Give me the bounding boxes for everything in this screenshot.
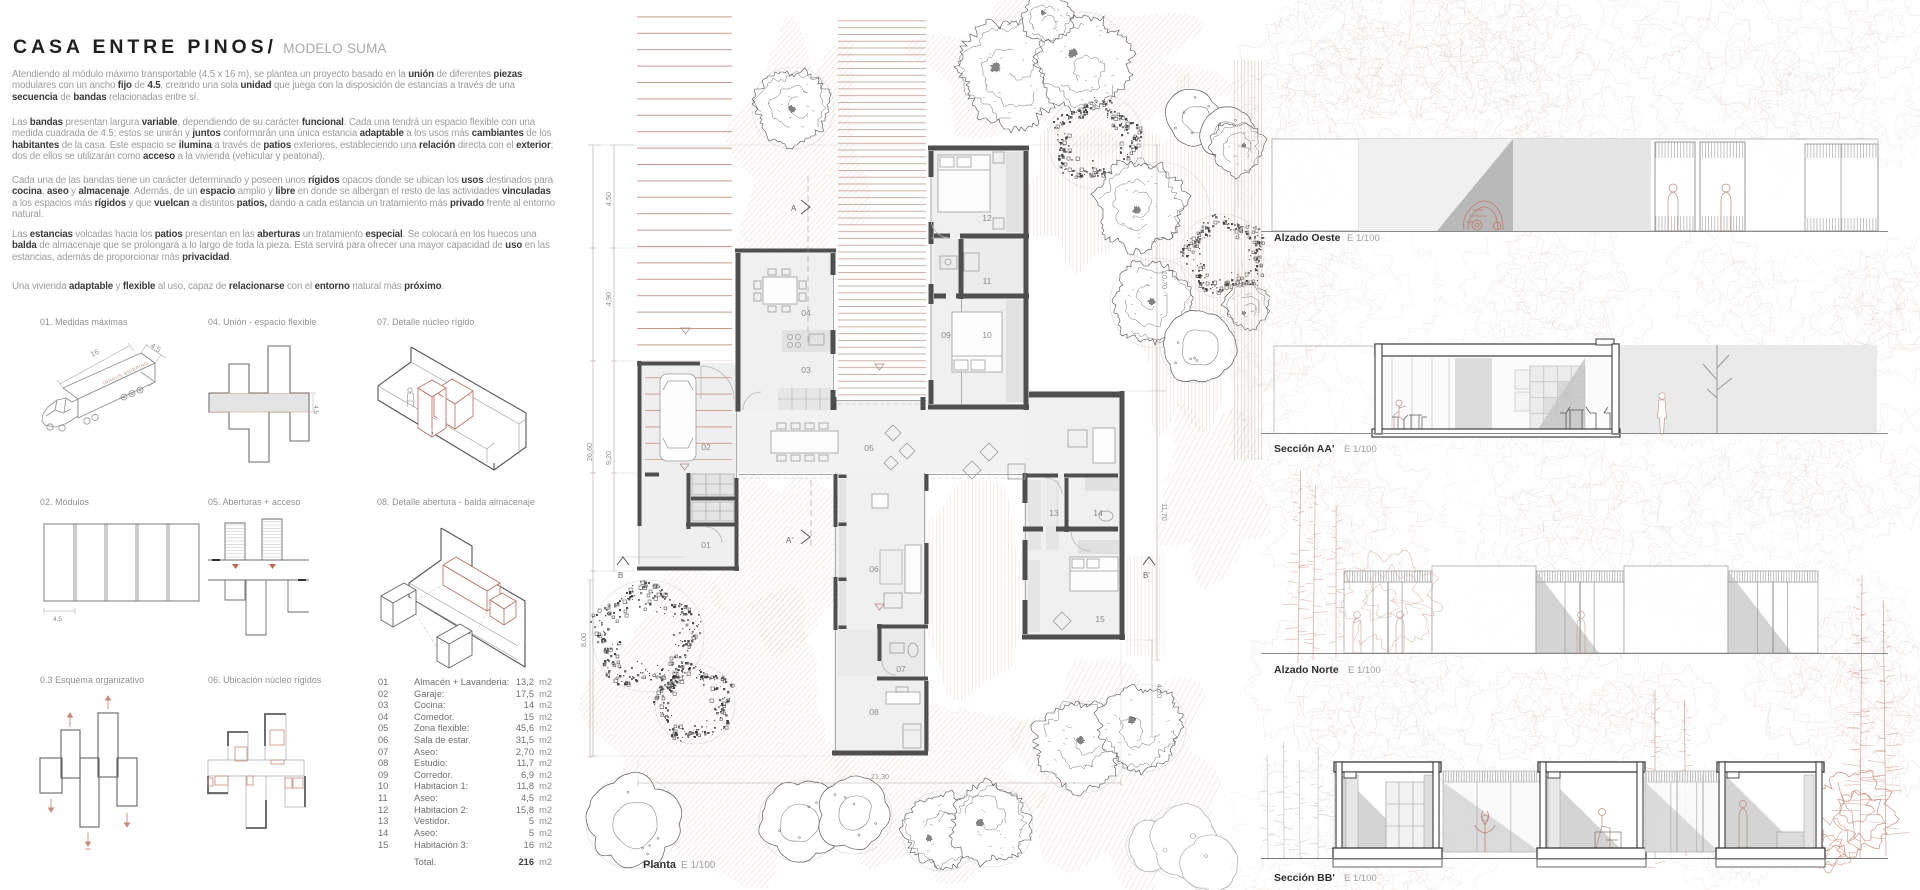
svg-text:10: 10 [982, 330, 992, 340]
svg-text:Alzado Norte: Alzado Norte [1274, 664, 1339, 676]
svg-text:B: B [618, 571, 623, 580]
svg-text:01: 01 [701, 540, 711, 550]
svg-text:A: A [791, 204, 797, 213]
svg-text:07: 07 [896, 664, 906, 674]
svg-text:4,5: 4,5 [312, 405, 319, 414]
svg-text:06: 06 [869, 564, 879, 574]
svg-text:16: 16 [89, 347, 101, 359]
svg-text:4,90: 4,90 [604, 292, 613, 306]
svg-text:E 1/100: E 1/100 [1344, 444, 1377, 455]
svg-text:B': B' [1143, 571, 1150, 580]
svg-text:11: 11 [983, 276, 992, 286]
svg-text:13: 13 [1049, 508, 1059, 518]
svg-text:E 1/100: E 1/100 [1344, 873, 1377, 884]
svg-text:4,5: 4,5 [149, 341, 163, 354]
svg-text:15: 15 [1095, 614, 1105, 624]
svg-text:08: 08 [869, 707, 879, 717]
svg-text:03: 03 [801, 365, 811, 375]
svg-text:Sección BB': Sección BB' [1274, 872, 1335, 884]
svg-text:4,50: 4,50 [604, 192, 613, 206]
svg-text:26,60: 26,60 [585, 443, 594, 461]
svg-text:9,20: 9,20 [604, 451, 613, 465]
svg-text:E 1/100: E 1/100 [1347, 233, 1380, 244]
svg-text:8,00: 8,00 [579, 633, 588, 647]
svg-text:12: 12 [982, 213, 992, 223]
svg-text:4,20: 4,20 [1155, 684, 1164, 698]
svg-text:4,5: 4,5 [53, 616, 62, 623]
svg-text:Planta: Planta [643, 859, 677, 871]
svg-text:Alzado Oeste: Alzado Oeste [1274, 232, 1341, 244]
svg-text:21,30: 21,30 [871, 772, 889, 781]
svg-text:10,70: 10,70 [1160, 271, 1169, 289]
svg-text:A': A' [786, 536, 793, 545]
svg-text:E 1/100: E 1/100 [681, 860, 716, 871]
svg-text:02: 02 [701, 442, 711, 452]
svg-text:Sección AA': Sección AA' [1274, 443, 1334, 455]
svg-text:11,70: 11,70 [1160, 503, 1169, 521]
svg-text:E 1/100: E 1/100 [1348, 665, 1381, 676]
svg-text:09: 09 [941, 330, 951, 340]
svg-text:05: 05 [864, 443, 874, 453]
svg-text:14: 14 [1093, 508, 1103, 518]
svg-text:04: 04 [801, 308, 811, 318]
